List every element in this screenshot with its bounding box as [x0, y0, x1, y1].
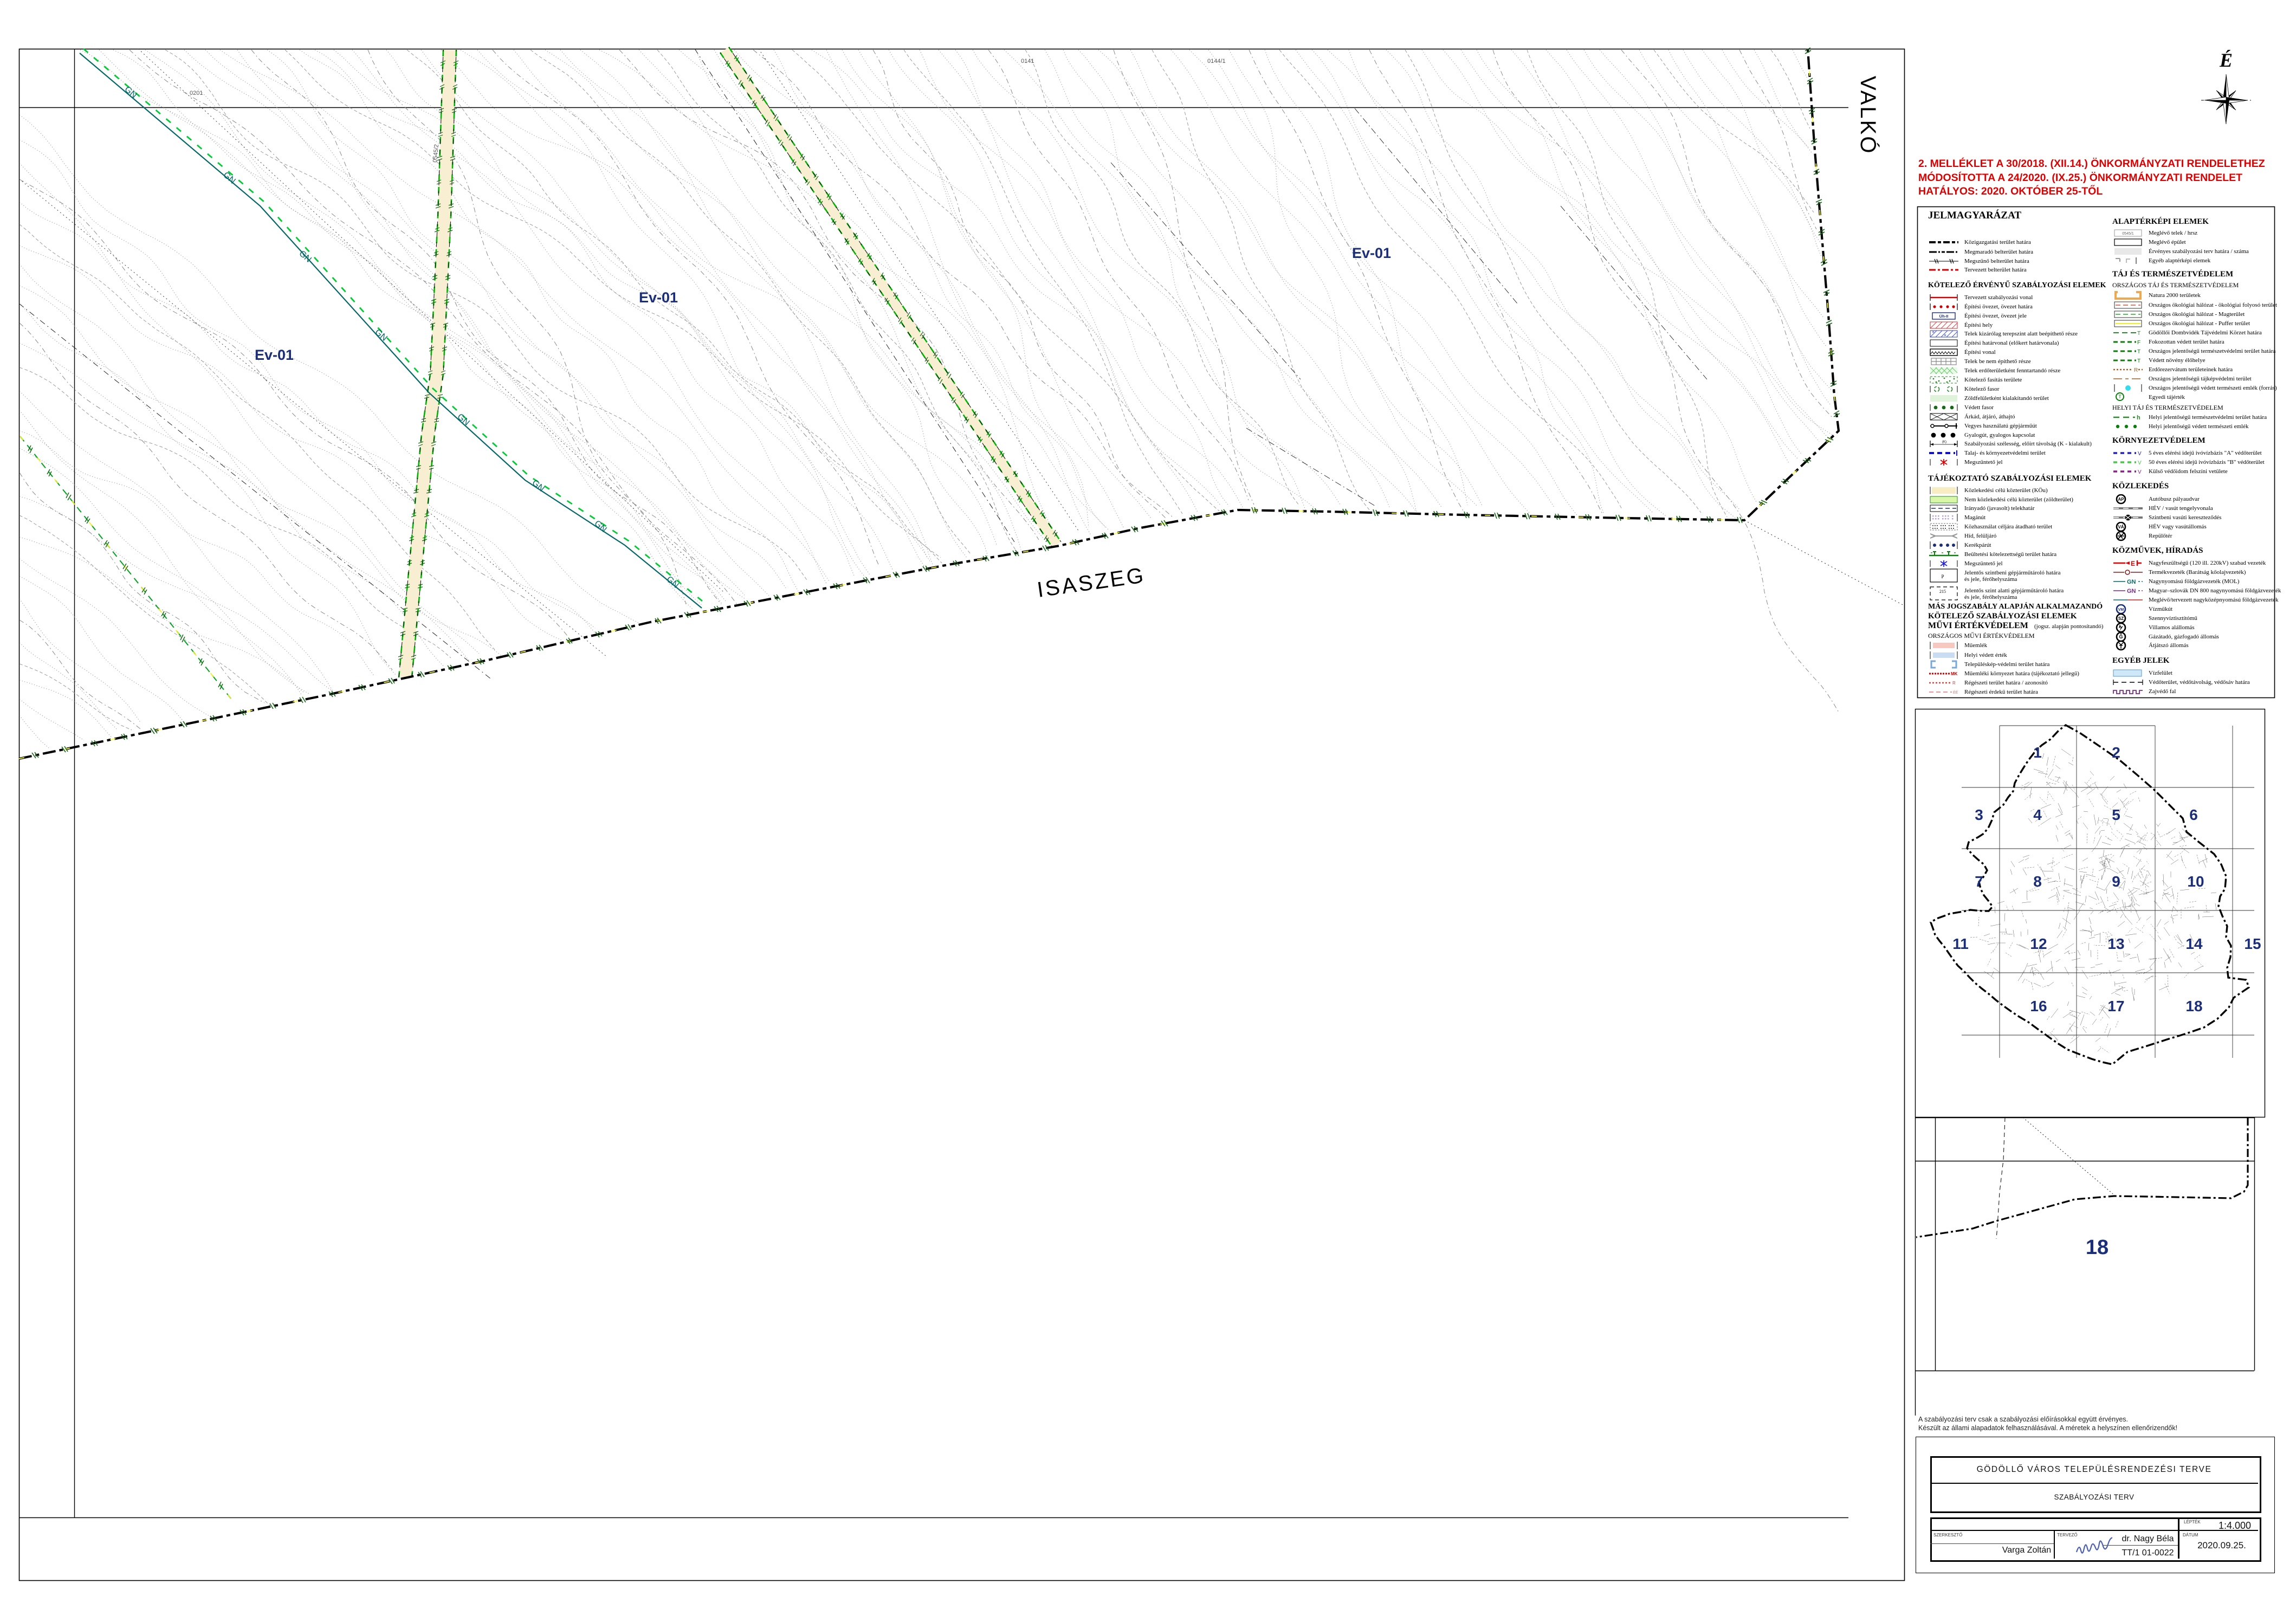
svg-text:h: h	[2137, 415, 2140, 421]
svg-text:GN: GN	[373, 327, 389, 343]
svg-text:G: G	[2119, 634, 2123, 639]
svg-text:1: 1	[2033, 744, 2042, 761]
svg-text:GN: GN	[2127, 588, 2136, 594]
svg-text:14: 14	[2185, 935, 2203, 952]
svg-text:Ev-01: Ev-01	[639, 289, 678, 306]
svg-text:12: 12	[2030, 935, 2047, 952]
svg-text:11: 11	[1952, 935, 1969, 952]
svg-text:GN: GN	[455, 412, 471, 428]
svg-text:Ev-01: Ev-01	[1352, 245, 1391, 261]
svg-text:É: É	[2219, 49, 2233, 71]
svg-text:9: 9	[2112, 873, 2120, 890]
svg-text:VM: VM	[2118, 608, 2124, 612]
svg-text:GN: GN	[530, 478, 546, 494]
svg-text:0144/1: 0144/1	[1207, 58, 1226, 64]
svg-text:T: T	[2137, 358, 2140, 364]
svg-text:17: 17	[2107, 998, 2124, 1014]
svg-text:P: P	[1941, 574, 1944, 579]
svg-text:8: 8	[2033, 873, 2042, 890]
svg-text:7: 7	[1975, 873, 1983, 890]
svg-text:T: T	[2118, 394, 2122, 399]
svg-text:0545/1: 0545/1	[2122, 232, 2134, 236]
svg-text:0201: 0201	[190, 90, 203, 96]
svg-text:GN: GN	[664, 574, 680, 590]
svg-text:GN: GN	[122, 85, 138, 100]
svg-text:V: V	[2138, 460, 2142, 466]
svg-text:ISASZEG: ISASZEG	[1036, 563, 1147, 602]
svg-text:10: 10	[2187, 873, 2204, 890]
svg-text:16: 16	[2030, 998, 2047, 1014]
svg-text:18: 18	[2086, 1236, 2109, 1259]
svg-text:GN: GN	[221, 170, 237, 186]
svg-text:5: 5	[2112, 806, 2120, 823]
svg-text:Ev-01: Ev-01	[255, 347, 294, 363]
svg-text:13: 13	[2107, 935, 2124, 952]
svg-text:Üh-II: Üh-II	[1939, 314, 1949, 319]
svg-text:AP: AP	[2118, 497, 2124, 502]
svg-text:T: T	[2137, 331, 2140, 337]
svg-text:GN: GN	[2127, 579, 2136, 585]
svg-text:ÉÉ: ÉÉ	[1953, 690, 1958, 695]
svg-text:MK: MK	[1951, 671, 1958, 676]
svg-text:15: 15	[2244, 935, 2261, 952]
svg-text:0141: 0141	[1021, 58, 1034, 64]
svg-text:215: 215	[1939, 589, 1946, 594]
svg-text:R: R	[1952, 681, 1956, 686]
svg-text:VÁ: VÁ	[2118, 525, 2124, 529]
svg-text:F: F	[2137, 340, 2140, 346]
svg-text:(K): (K)	[1942, 441, 1946, 444]
svg-text:R: R	[2134, 367, 2138, 373]
svg-text:V: V	[2138, 469, 2142, 475]
svg-text:4: 4	[2033, 806, 2042, 823]
svg-text:V: V	[2138, 451, 2142, 457]
svg-text:T: T	[2137, 349, 2140, 355]
svg-text:18: 18	[2185, 998, 2202, 1014]
svg-text:E: E	[2131, 560, 2135, 567]
svg-text:6: 6	[2189, 806, 2198, 823]
svg-text:3: 3	[1975, 806, 1983, 823]
svg-text:2: 2	[2112, 744, 2120, 761]
svg-text:GN: GN	[592, 519, 608, 534]
svg-text:SZ: SZ	[2118, 616, 2124, 621]
svg-text:VALKÓ: VALKÓ	[1856, 76, 1880, 154]
